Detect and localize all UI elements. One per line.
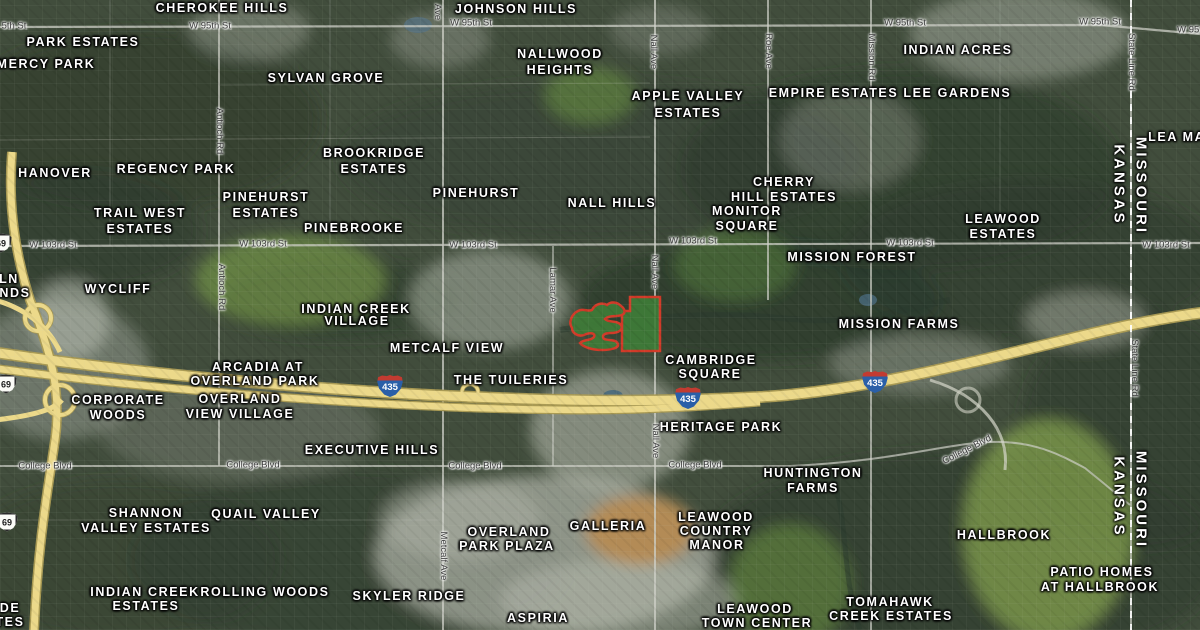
- state-label-kansas: KANSAS: [1112, 144, 1127, 225]
- neighborhood-label-aspiria: ASPIRIA: [507, 612, 569, 625]
- neighborhood-label-cherokee-hills: CHEROKEE HILLS: [156, 2, 289, 15]
- road-label-w-103rd-st: W 103rd St: [886, 238, 934, 248]
- neighborhood-label-corporate: CORPORATE: [71, 394, 164, 407]
- neighborhood-label-leawood: LEAWOOD: [678, 511, 754, 524]
- neighborhood-label-hanover: HANOVER: [18, 167, 92, 180]
- road-label-college-blvd: College Blvd: [448, 461, 501, 471]
- road-label-vertical-nall-ave: Nall Ave: [648, 35, 658, 70]
- neighborhood-label-hill-estates: HILL ESTATES: [731, 191, 837, 204]
- road-label-vertical-roe-ave: Roe Ave: [763, 33, 773, 69]
- neighborhood-label-town-center: TOWN CENTER: [702, 617, 812, 630]
- neighborhood-label-apple-valley: APPLE VALLEY: [632, 90, 745, 103]
- neighborhood-label-pinehurst: PINEHURST: [433, 187, 520, 200]
- neighborhood-label-skyler-ridge: SKYLER RIDGE: [353, 590, 466, 603]
- neighborhood-label-hallbrook: HALLBROOK: [957, 529, 1051, 542]
- neighborhood-label-at-hallbrook: AT HALLBROOK: [1041, 581, 1159, 594]
- neighborhood-label-galleria: GALLERIA: [570, 520, 647, 533]
- neighborhood-label-farms: FARMS: [787, 482, 839, 495]
- neighborhood-label-monitor: MONITOR: [712, 205, 782, 218]
- road-label-vertical-mission-rd: Mission Rd: [866, 34, 876, 81]
- neighborhood-label-woods: WOODS: [90, 409, 147, 422]
- road-label-college-blvd: College Blvd: [226, 460, 279, 470]
- neighborhood-label-ln: LN: [0, 273, 19, 286]
- neighborhood-label-brookridge: BROOKRIDGE: [323, 147, 425, 160]
- neighborhood-label-regency-park: REGENCY PARK: [117, 163, 236, 176]
- neighborhood-label-park-plaza: PARK PLAZA: [459, 540, 555, 553]
- neighborhood-label-wycliff: WYCLIFF: [85, 283, 152, 296]
- road-label-w-103rd-st: W 103rd St: [239, 239, 287, 249]
- neighborhood-label-estates: ESTATES: [341, 163, 408, 176]
- neighborhood-label-de: DE: [0, 602, 20, 615]
- neighborhood-label-shannon: SHANNON: [109, 507, 183, 520]
- neighborhood-label-johnson-hills: JOHNSON HILLS: [455, 3, 577, 16]
- neighborhood-label-estates: ESTATES: [233, 207, 300, 220]
- neighborhood-label-leawood: LEAWOOD: [717, 603, 793, 616]
- neighborhood-label-empire-estates-lee-gardens: EMPIRE ESTATES LEE GARDENS: [769, 87, 1012, 100]
- neighborhood-label-rolling-woods: ROLLING WOODS: [200, 586, 329, 599]
- neighborhood-label-overland: OVERLAND: [199, 393, 282, 406]
- road-label-w-95th-st: W 95th St: [1177, 25, 1200, 35]
- neighborhood-label-nall-hills: NALL HILLS: [568, 197, 657, 210]
- road-label-w-103rd-st: W 103rd St: [1142, 240, 1190, 250]
- neighborhood-label-arcadia-at: ARCADIA AT: [212, 361, 304, 374]
- i435-shield-icon-435: 435: [675, 387, 701, 409]
- us69-shield-icon-69: 69: [0, 375, 17, 394]
- road-label-w-103rd-st: W 103rd St: [669, 236, 717, 246]
- road-label-vertical-ave: Ave: [432, 4, 442, 20]
- state-label-missouri: MISSOURI: [1134, 137, 1149, 235]
- neighborhood-label-indian-acres: INDIAN ACRES: [903, 44, 1012, 57]
- neighborhood-label-valley-estates: VALLEY ESTATES: [81, 522, 211, 535]
- road-label-vertical-state-line-rd: State Line Rd: [1129, 339, 1139, 397]
- neighborhood-label-nds: NDS: [0, 287, 31, 300]
- neighborhood-label-park-estates: PARK ESTATES: [27, 36, 140, 49]
- neighborhood-label-heritage-park: HERITAGE PARK: [660, 421, 782, 434]
- neighborhood-label-executive-hills: EXECUTIVE HILLS: [305, 444, 439, 457]
- neighborhood-label-sylvan-grove: SYLVAN GROVE: [268, 72, 385, 85]
- road-label-vertical-metcalf-ave: Metcalf Ave: [438, 532, 448, 581]
- i435-shield-icon-435: 435: [377, 375, 403, 397]
- road-label-college-blvd: College Blvd: [18, 461, 71, 471]
- road-label-w-103rd-st: W 103rd St: [449, 240, 497, 250]
- road-label-vertical-nall-ave: Nall Ave: [649, 255, 659, 290]
- neighborhood-label-estates: ESTATES: [655, 107, 722, 120]
- neighborhood-label-trail-west: TRAIL WEST: [94, 207, 186, 220]
- road-label-w-95th-st: W 95th St: [450, 18, 492, 28]
- road-label-w-95th-st: W 95th St: [189, 21, 231, 31]
- neighborhood-label-tes: TES: [0, 616, 25, 629]
- road-label-w-103rd-st: W 103rd St: [29, 240, 77, 250]
- road-label-w-95th-st: W 95th St: [1079, 17, 1121, 27]
- neighborhood-label-overland-park: OVERLAND PARK: [191, 375, 320, 388]
- neighborhood-label-cambridge: CAMBRIDGE: [665, 354, 756, 367]
- satellite-map[interactable]: CHEROKEE HILLSJOHNSON HILLSPARK ESTATESM…: [0, 0, 1200, 630]
- neighborhood-label-village: VILLAGE: [324, 315, 389, 328]
- neighborhood-label-lea-manor: LEA MANOR: [1148, 131, 1200, 144]
- neighborhood-label-country: COUNTRY: [680, 525, 753, 538]
- neighborhood-label-the-tuileries: THE TUILERIES: [454, 374, 569, 387]
- road-label-vertical-antioch-rd: Antioch Rd: [216, 264, 226, 310]
- neighborhood-label-heights: HEIGHTS: [527, 64, 594, 77]
- neighborhood-label-square: SQUARE: [715, 220, 778, 233]
- us69-shield-icon-69: 69: [0, 513, 18, 532]
- neighborhood-label-metcalf-view: METCALF VIEW: [390, 342, 504, 355]
- neighborhood-label-mission-farms: MISSION FARMS: [839, 318, 960, 331]
- neighborhood-label-pinebrooke: PINEBROOKE: [304, 222, 404, 235]
- neighborhood-label-mercy-park: MERCY PARK: [0, 58, 95, 71]
- neighborhood-label-overland: OVERLAND: [468, 526, 551, 539]
- neighborhood-label-cherry: CHERRY: [753, 176, 815, 189]
- neighborhood-label-quail-valley: QUAIL VALLEY: [211, 508, 321, 521]
- state-label-missouri: MISSOURI: [1134, 451, 1149, 549]
- i435-shield-icon-435: 435: [862, 371, 888, 393]
- road-label-college-blvd: College Blvd: [941, 434, 993, 467]
- neighborhood-label-indian-creek: INDIAN CREEK: [90, 586, 199, 599]
- neighborhood-label-creek-estates: CREEK ESTATES: [829, 610, 953, 623]
- neighborhood-label-estates: ESTATES: [113, 600, 180, 613]
- neighborhood-label-huntington: HUNTINGTON: [763, 467, 862, 480]
- road-label-vertical-state-line-rd: State Line Rd: [1126, 33, 1136, 91]
- map-labels-layer: CHEROKEE HILLSJOHNSON HILLSPARK ESTATESM…: [0, 0, 1200, 630]
- neighborhood-label-tomahawk: TOMAHAWK: [846, 596, 934, 609]
- neighborhood-label-square: SQUARE: [678, 368, 741, 381]
- road-label-college-blvd: College Blvd: [668, 460, 721, 470]
- road-label-vertical-antioch-rd: Antioch Rd: [214, 108, 224, 154]
- neighborhood-label-nallwood: NALLWOOD: [517, 48, 603, 61]
- neighborhood-label-leawood: LEAWOOD: [965, 213, 1041, 226]
- neighborhood-label-view-village: VIEW VILLAGE: [186, 408, 295, 421]
- state-label-kansas: KANSAS: [1112, 456, 1127, 537]
- neighborhood-label-mission-forest: MISSION FOREST: [787, 251, 916, 264]
- neighborhood-label-patio-homes: PATIO HOMES: [1050, 566, 1153, 579]
- neighborhood-label-pinehurst: PINEHURST: [223, 191, 310, 204]
- neighborhood-label-estates: ESTATES: [970, 228, 1037, 241]
- neighborhood-label-manor: MANOR: [689, 539, 744, 552]
- neighborhood-label-estates: ESTATES: [107, 223, 174, 236]
- road-label-5th-st: 5th St: [2, 21, 27, 31]
- road-label-vertical-nall-ave: Nall Ave: [650, 424, 660, 459]
- us69-shield-icon-69: 69: [0, 234, 12, 253]
- road-label-w-95th-st: W 95th St: [884, 18, 926, 28]
- road-label-vertical-lamar-ave: Lamar Ave: [547, 267, 557, 312]
